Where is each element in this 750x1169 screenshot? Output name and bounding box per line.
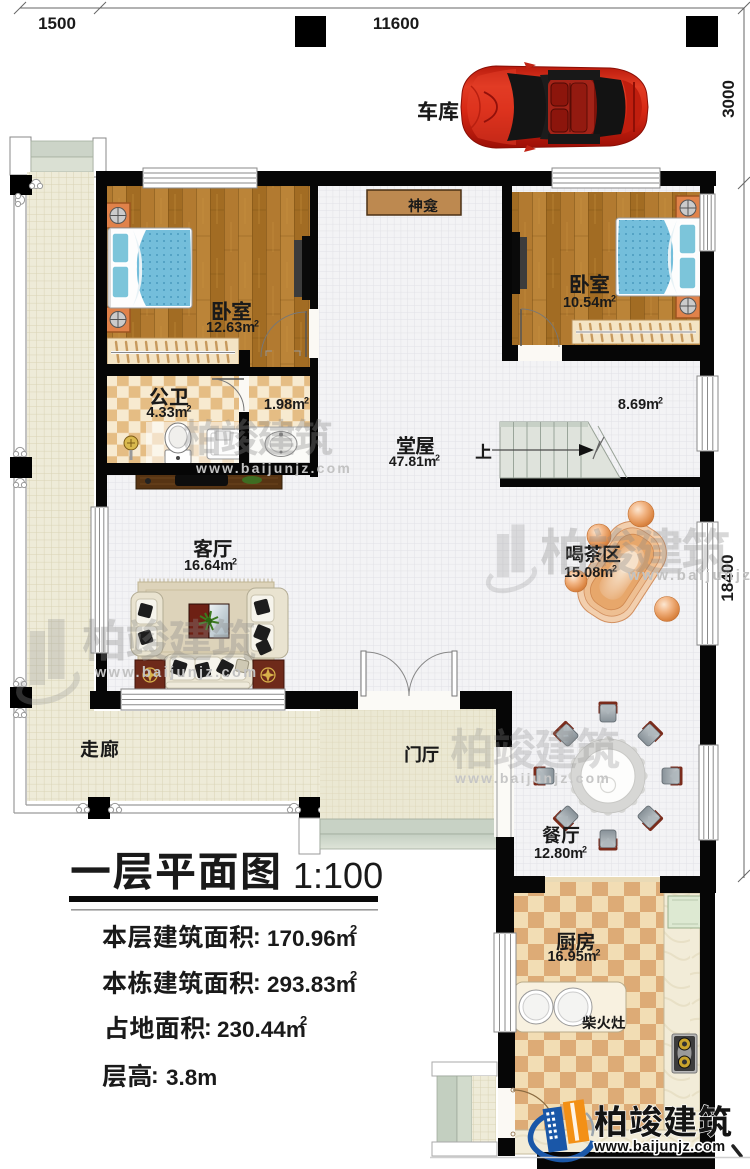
- svg-text:2: 2: [186, 403, 191, 413]
- svg-text:11600: 11600: [373, 14, 419, 33]
- svg-text:2: 2: [658, 395, 663, 405]
- svg-text:8.69m: 8.69m: [618, 397, 659, 413]
- svg-text:2: 2: [300, 1013, 307, 1028]
- svg-text:16.95m: 16.95m: [547, 949, 596, 965]
- svg-text:2: 2: [304, 395, 309, 405]
- svg-text:47.81m: 47.81m: [389, 453, 436, 469]
- svg-text:2: 2: [595, 947, 600, 957]
- svg-text:293.83m: 293.83m: [267, 972, 356, 997]
- svg-text:10.54m: 10.54m: [563, 295, 612, 311]
- svg-text:2: 2: [435, 453, 440, 463]
- svg-text:www.baijunjz.com: www.baijunjz.com: [627, 567, 750, 584]
- svg-text:170.96m: 170.96m: [267, 926, 356, 951]
- svg-text:3.8m: 3.8m: [166, 1065, 217, 1090]
- svg-text:www.baijunjz.com: www.baijunjz.com: [593, 1139, 726, 1155]
- svg-text:www.baijunjz.com: www.baijunjz.com: [94, 665, 259, 681]
- svg-text:2: 2: [611, 293, 616, 303]
- svg-text:1.98m: 1.98m: [264, 397, 305, 413]
- svg-text:4.33m: 4.33m: [146, 405, 187, 421]
- svg-text:12.63m: 12.63m: [206, 320, 255, 336]
- svg-text:www.baijunjz.com: www.baijunjz.com: [454, 770, 611, 786]
- svg-text:1:100: 1:100: [293, 855, 383, 896]
- svg-text::: :: [204, 1014, 212, 1040]
- svg-text:12.80m: 12.80m: [534, 846, 583, 862]
- svg-text:2: 2: [232, 556, 237, 566]
- svg-text::: :: [253, 969, 261, 995]
- svg-text:3000: 3000: [719, 80, 738, 118]
- svg-text::: :: [151, 1062, 159, 1088]
- svg-text:230.44m: 230.44m: [217, 1017, 306, 1042]
- svg-text:2: 2: [582, 844, 587, 854]
- svg-text::: :: [253, 923, 261, 949]
- svg-text:2: 2: [254, 318, 259, 328]
- svg-text:1500: 1500: [38, 14, 76, 33]
- svg-text:2: 2: [350, 922, 357, 937]
- svg-text:16.64m: 16.64m: [184, 558, 233, 574]
- svg-text:www.baijunjz.com: www.baijunjz.com: [195, 460, 352, 476]
- svg-text:2: 2: [350, 968, 357, 983]
